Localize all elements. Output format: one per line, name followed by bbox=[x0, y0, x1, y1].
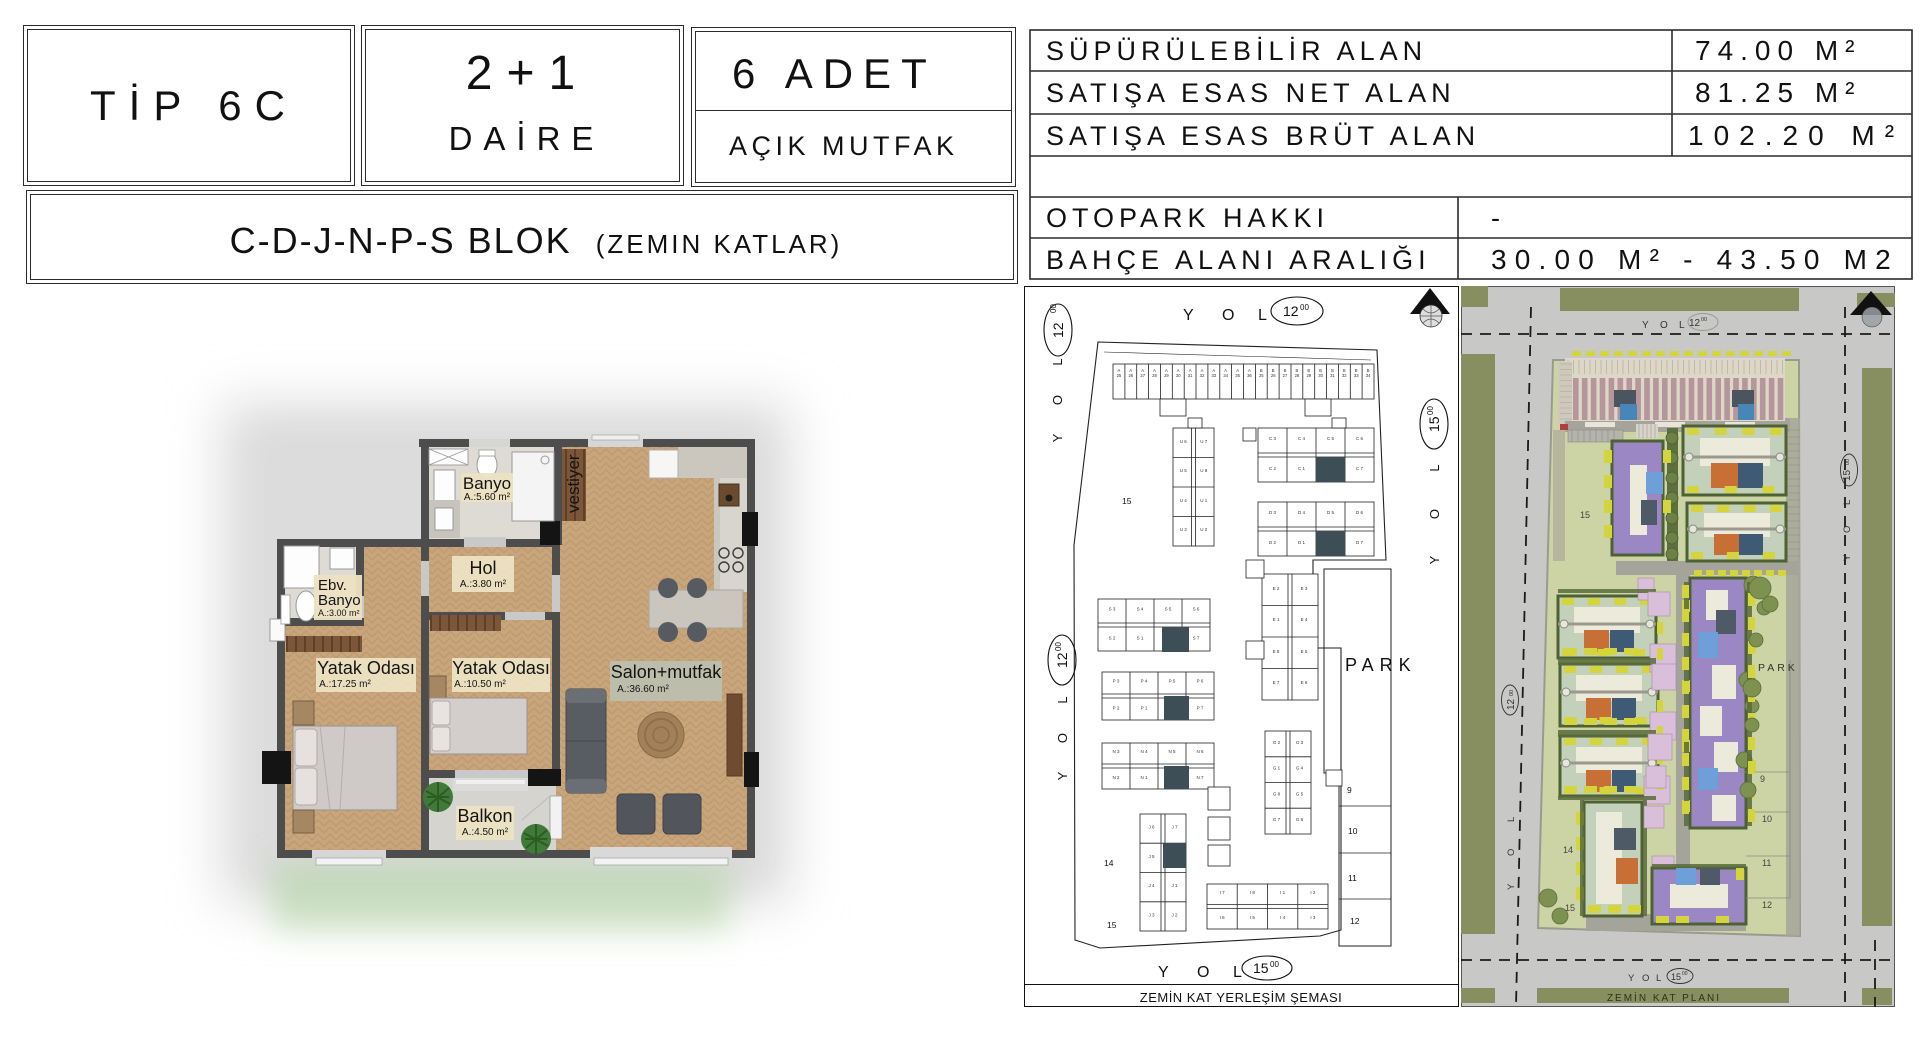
svg-text:P 2: P 2 bbox=[1113, 705, 1120, 710]
svg-text:E 7: E 7 bbox=[1273, 680, 1280, 685]
svg-text:12: 12 bbox=[1689, 318, 1701, 329]
svg-text:9: 9 bbox=[1347, 785, 1352, 795]
svg-text:P 4: P 4 bbox=[1141, 679, 1148, 684]
svg-text:A.:3.00 m²: A.:3.00 m² bbox=[318, 608, 360, 618]
svg-text:29: 29 bbox=[1306, 373, 1311, 378]
svg-text:P 5: P 5 bbox=[1169, 679, 1176, 684]
svg-text:28: 28 bbox=[1152, 373, 1157, 378]
svg-text:S 3: S 3 bbox=[1109, 606, 1116, 611]
svg-text:00: 00 bbox=[1270, 960, 1279, 969]
svg-text:E 6: E 6 bbox=[1301, 680, 1308, 685]
svg-text:E 3: E 3 bbox=[1301, 586, 1308, 591]
svg-text:O: O bbox=[1197, 964, 1209, 981]
svg-text:C 4: C 4 bbox=[1298, 436, 1306, 441]
svg-text:30.00 M² - 43.50 M2: 30.00 M² - 43.50 M2 bbox=[1491, 244, 1899, 275]
svg-text:P 1: P 1 bbox=[1141, 705, 1148, 710]
svg-text:12: 12 bbox=[1050, 322, 1066, 338]
svg-text:O: O bbox=[1842, 526, 1853, 533]
svg-text:12: 12 bbox=[1506, 698, 1517, 710]
svg-text:00: 00 bbox=[1845, 459, 1851, 465]
svg-text:14: 14 bbox=[1563, 845, 1573, 855]
svg-text:U 3: U 3 bbox=[1180, 527, 1188, 532]
svg-text:D 6: D 6 bbox=[1356, 510, 1364, 515]
svg-text:L: L bbox=[1055, 696, 1070, 703]
svg-text:PARK: PARK bbox=[1758, 662, 1798, 674]
svg-text:J 6: J 6 bbox=[1148, 825, 1155, 830]
svg-text:Y: Y bbox=[1842, 554, 1853, 561]
svg-text:N 2: N 2 bbox=[1112, 775, 1120, 780]
svg-text:12: 12 bbox=[1054, 652, 1070, 668]
svg-text:L: L bbox=[1679, 320, 1685, 331]
svg-text:C 5: C 5 bbox=[1327, 436, 1335, 441]
svg-text:J 4: J 4 bbox=[1148, 883, 1155, 888]
svg-text:11: 11 bbox=[1348, 873, 1357, 883]
svg-text:O: O bbox=[1660, 320, 1668, 331]
svg-text:G 8: G 8 bbox=[1273, 791, 1281, 796]
svg-text:Balkon: Balkon bbox=[457, 806, 512, 826]
svg-text:Y: Y bbox=[1506, 883, 1517, 890]
svg-text:S 6: S 6 bbox=[1193, 606, 1200, 611]
svg-text:31: 31 bbox=[1330, 373, 1335, 378]
svg-text:S 1: S 1 bbox=[1137, 636, 1144, 641]
svg-text:26: 26 bbox=[1128, 373, 1133, 378]
svg-text:I 2: I 2 bbox=[1310, 890, 1316, 895]
svg-text:33: 33 bbox=[1211, 373, 1216, 378]
svg-text:ZEMİN KAT YERLEŞİM ŞEMASI: ZEMİN KAT YERLEŞİM ŞEMASI bbox=[1140, 990, 1343, 1005]
svg-text:Y: Y bbox=[1158, 964, 1169, 981]
svg-text:34: 34 bbox=[1366, 373, 1371, 378]
svg-text:D 5: D 5 bbox=[1327, 510, 1335, 515]
svg-text:I 5: I 5 bbox=[1250, 915, 1256, 920]
svg-text:15: 15 bbox=[1122, 496, 1132, 506]
svg-text:ZEMİN KAT PLANI: ZEMİN KAT PLANI bbox=[1607, 991, 1721, 1004]
svg-text:J 3: J 3 bbox=[1148, 912, 1155, 917]
svg-text:G 4: G 4 bbox=[1296, 766, 1304, 771]
svg-text:Y: Y bbox=[1628, 973, 1635, 984]
svg-text:S 7: S 7 bbox=[1193, 636, 1200, 641]
svg-text:U 7: U 7 bbox=[1200, 439, 1208, 444]
svg-text:12: 12 bbox=[1283, 303, 1299, 319]
svg-text:15: 15 bbox=[1580, 510, 1590, 520]
svg-text:SATIŞA ESAS BRÜT ALAN: SATIŞA ESAS BRÜT ALAN bbox=[1046, 121, 1480, 151]
svg-text:I 8: I 8 bbox=[1250, 890, 1256, 895]
svg-text:N 1: N 1 bbox=[1140, 775, 1148, 780]
svg-text:J 5: J 5 bbox=[1148, 854, 1155, 859]
svg-text:-: - bbox=[1491, 203, 1505, 233]
svg-text:00: 00 bbox=[1054, 642, 1063, 651]
svg-text:27: 27 bbox=[1283, 373, 1288, 378]
svg-text:E 4: E 4 bbox=[1301, 617, 1308, 622]
svg-text:I 4: I 4 bbox=[1280, 915, 1286, 920]
svg-text:C 3: C 3 bbox=[1269, 436, 1277, 441]
svg-text:L: L bbox=[1233, 964, 1242, 981]
svg-text:P 3: P 3 bbox=[1113, 679, 1120, 684]
svg-text:15: 15 bbox=[1671, 972, 1681, 982]
svg-text:L: L bbox=[1656, 973, 1661, 984]
svg-text:U 1: U 1 bbox=[1200, 498, 1208, 503]
svg-text:A.:5.60 m²: A.:5.60 m² bbox=[464, 492, 511, 503]
svg-text:15: 15 bbox=[1842, 469, 1853, 481]
svg-text:L: L bbox=[1258, 307, 1267, 324]
svg-text:34: 34 bbox=[1223, 373, 1228, 378]
svg-text:N 5: N 5 bbox=[1168, 749, 1176, 754]
svg-text:G 1: G 1 bbox=[1273, 766, 1281, 771]
svg-text:J 7: J 7 bbox=[1171, 825, 1178, 830]
svg-text:SATIŞA ESAS NET ALAN: SATIŞA ESAS NET ALAN bbox=[1046, 78, 1456, 108]
svg-text:25: 25 bbox=[1117, 373, 1122, 378]
svg-text:O: O bbox=[1506, 849, 1517, 856]
svg-text:A.:36.60 m²: A.:36.60 m² bbox=[617, 684, 669, 695]
svg-text:10: 10 bbox=[1348, 826, 1358, 836]
svg-text:15: 15 bbox=[1107, 920, 1117, 930]
svg-text:C 6: C 6 bbox=[1356, 436, 1364, 441]
svg-text:E 5: E 5 bbox=[1301, 649, 1308, 654]
svg-text:28: 28 bbox=[1295, 373, 1300, 378]
svg-text:E 8: E 8 bbox=[1273, 649, 1280, 654]
svg-text:36: 36 bbox=[1247, 373, 1252, 378]
svg-text:Hol: Hol bbox=[469, 558, 496, 578]
svg-text:PARK: PARK bbox=[1345, 655, 1417, 675]
svg-text:Salon+mutfak: Salon+mutfak bbox=[611, 662, 723, 682]
svg-text:00: 00 bbox=[1426, 406, 1435, 415]
svg-text:L: L bbox=[1050, 358, 1065, 365]
svg-text:27: 27 bbox=[1140, 373, 1145, 378]
svg-text:00: 00 bbox=[1509, 690, 1515, 696]
svg-text:Y: Y bbox=[1183, 307, 1194, 324]
svg-text:G 7: G 7 bbox=[1273, 817, 1281, 822]
svg-text:I 6: I 6 bbox=[1220, 915, 1226, 920]
svg-text:vestiyer: vestiyer bbox=[564, 454, 583, 513]
svg-text:I 1: I 1 bbox=[1280, 890, 1286, 895]
svg-text:00: 00 bbox=[1701, 317, 1707, 323]
svg-text:Yatak Odası: Yatak Odası bbox=[452, 658, 550, 678]
svg-text:Banyo: Banyo bbox=[463, 474, 511, 493]
svg-text:N 3: N 3 bbox=[1112, 749, 1120, 754]
svg-text:33: 33 bbox=[1354, 373, 1359, 378]
svg-text:G 5: G 5 bbox=[1296, 791, 1304, 796]
svg-text:J 1: J 1 bbox=[1171, 883, 1178, 888]
svg-text:31: 31 bbox=[1188, 373, 1193, 378]
svg-text:81.25 M²: 81.25 M² bbox=[1695, 77, 1862, 108]
svg-text:29: 29 bbox=[1164, 373, 1169, 378]
svg-text:A.:3.80 m²: A.:3.80 m² bbox=[460, 579, 507, 590]
svg-text:30: 30 bbox=[1318, 373, 1323, 378]
svg-text:9: 9 bbox=[1760, 774, 1765, 784]
svg-text:C 1: C 1 bbox=[1298, 466, 1306, 471]
svg-text:S 4: S 4 bbox=[1137, 606, 1144, 611]
svg-text:O: O bbox=[1055, 733, 1070, 743]
svg-text:O: O bbox=[1642, 973, 1649, 984]
svg-text:A.:17.25 m²: A.:17.25 m² bbox=[319, 679, 371, 690]
svg-text:12: 12 bbox=[1350, 916, 1360, 926]
svg-text:OTOPARK HAKKI: OTOPARK HAKKI bbox=[1046, 203, 1329, 233]
svg-text:26: 26 bbox=[1271, 373, 1276, 378]
svg-text:O: O bbox=[1427, 509, 1442, 519]
svg-text:L: L bbox=[1427, 464, 1442, 471]
svg-text:Y: Y bbox=[1055, 771, 1070, 780]
svg-text:U 5: U 5 bbox=[1180, 468, 1188, 473]
svg-text:U 2: U 2 bbox=[1200, 527, 1208, 532]
svg-text:C 7: C 7 bbox=[1356, 466, 1364, 471]
svg-text:L: L bbox=[1842, 500, 1853, 505]
svg-text:15: 15 bbox=[1565, 903, 1575, 913]
svg-text:30: 30 bbox=[1176, 373, 1181, 378]
svg-text:BAHÇE ALANI ARALIĞI: BAHÇE ALANI ARALIĞI bbox=[1046, 244, 1431, 275]
svg-text:O: O bbox=[1050, 395, 1065, 405]
svg-text:25: 25 bbox=[1259, 373, 1264, 378]
svg-text:G 2: G 2 bbox=[1273, 740, 1281, 745]
svg-text:00: 00 bbox=[1049, 304, 1058, 313]
svg-text:O: O bbox=[1222, 307, 1234, 324]
svg-text:102.20 M²: 102.20 M² bbox=[1688, 120, 1904, 151]
svg-text:35: 35 bbox=[1235, 373, 1240, 378]
svg-text:S 5: S 5 bbox=[1165, 606, 1172, 611]
svg-text:32: 32 bbox=[1200, 373, 1205, 378]
svg-text:D 7: D 7 bbox=[1356, 540, 1364, 545]
svg-text:Y: Y bbox=[1050, 433, 1065, 442]
svg-text:N 7: N 7 bbox=[1196, 775, 1204, 780]
svg-text:15: 15 bbox=[1426, 416, 1442, 432]
svg-text:S 2: S 2 bbox=[1109, 636, 1116, 641]
svg-text:Yatak Odası: Yatak Odası bbox=[317, 658, 415, 678]
svg-text:D 3: D 3 bbox=[1269, 510, 1277, 515]
svg-text:Banyo: Banyo bbox=[318, 592, 361, 609]
svg-text:N 6: N 6 bbox=[1196, 749, 1204, 754]
svg-text:I 7: I 7 bbox=[1220, 890, 1226, 895]
svg-text:00: 00 bbox=[1300, 303, 1309, 312]
svg-text:D 4: D 4 bbox=[1298, 510, 1306, 515]
svg-text:J 2: J 2 bbox=[1171, 912, 1178, 917]
svg-text:P 6: P 6 bbox=[1197, 679, 1204, 684]
svg-text:E 1: E 1 bbox=[1273, 617, 1280, 622]
svg-text:32: 32 bbox=[1342, 373, 1347, 378]
svg-text:74.00 M²: 74.00 M² bbox=[1695, 35, 1862, 66]
svg-text:00: 00 bbox=[1682, 971, 1688, 977]
svg-text:I 3: I 3 bbox=[1310, 915, 1316, 920]
svg-text:G 3: G 3 bbox=[1296, 740, 1304, 745]
svg-text:U 6: U 6 bbox=[1180, 439, 1188, 444]
svg-text:Y: Y bbox=[1427, 555, 1442, 564]
svg-text:G 6: G 6 bbox=[1296, 817, 1304, 822]
svg-text:A.:10.50 m²: A.:10.50 m² bbox=[454, 679, 506, 690]
svg-text:11: 11 bbox=[1762, 858, 1771, 868]
svg-text:15: 15 bbox=[1253, 960, 1269, 976]
svg-text:L: L bbox=[1506, 817, 1517, 822]
svg-text:12: 12 bbox=[1762, 900, 1772, 910]
svg-text:Y: Y bbox=[1642, 320, 1649, 331]
svg-text:D 2: D 2 bbox=[1269, 540, 1277, 545]
svg-text:U 4: U 4 bbox=[1180, 498, 1188, 503]
svg-text:P 7: P 7 bbox=[1197, 705, 1204, 710]
svg-text:N 4: N 4 bbox=[1140, 749, 1148, 754]
svg-text:SÜPÜRÜLEBİLİR ALAN: SÜPÜRÜLEBİLİR ALAN bbox=[1046, 35, 1427, 66]
svg-text:14: 14 bbox=[1104, 858, 1114, 868]
svg-text:10: 10 bbox=[1762, 814, 1772, 824]
svg-text:E 2: E 2 bbox=[1273, 586, 1280, 591]
svg-text:C 2: C 2 bbox=[1269, 466, 1277, 471]
svg-text:U 8: U 8 bbox=[1200, 468, 1208, 473]
svg-text:D 1: D 1 bbox=[1298, 540, 1306, 545]
svg-text:A.:4.50 m²: A.:4.50 m² bbox=[462, 827, 509, 838]
